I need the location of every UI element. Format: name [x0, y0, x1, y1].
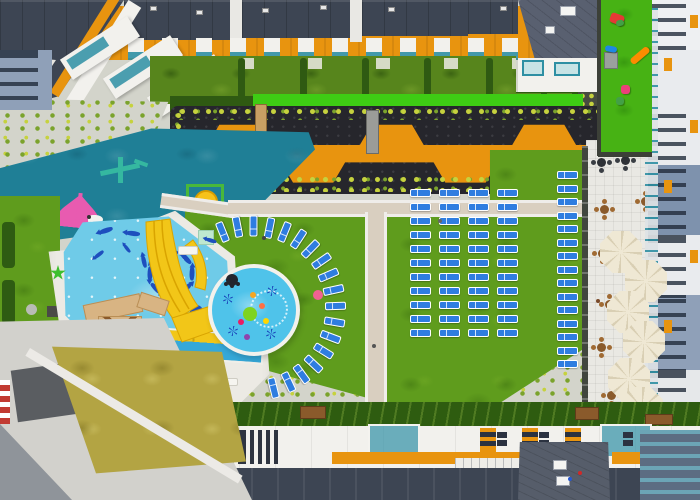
splash-toy — [238, 319, 244, 325]
sun-lounger — [557, 225, 578, 233]
sun-lounger — [439, 301, 460, 309]
snowflake-decal — [228, 326, 238, 336]
sun-lounger — [497, 315, 518, 323]
kids-toy — [621, 85, 630, 94]
footpath-vertical — [365, 212, 387, 434]
sun-lounger — [439, 203, 460, 211]
sun-lounger — [325, 302, 346, 311]
orange-window-accent — [664, 180, 672, 193]
sun-lounger — [557, 333, 578, 341]
splash-toy — [250, 292, 256, 298]
roof-ac-unit — [150, 6, 157, 11]
sun-lounger — [557, 252, 578, 260]
cafe-table-wood — [597, 343, 606, 352]
sun-lounger — [557, 347, 578, 355]
sun-lounger — [410, 217, 431, 225]
roof-ac-unit — [500, 6, 507, 11]
sun-lounger — [410, 301, 431, 309]
sun-lounger — [468, 329, 489, 337]
louver-panels — [242, 430, 282, 464]
skylight — [560, 6, 576, 16]
sun-lounger — [557, 293, 578, 301]
sun-lounger — [557, 171, 578, 179]
utility-box — [604, 52, 618, 69]
cafe-table-wood — [600, 205, 609, 214]
sun-lounger — [497, 217, 518, 225]
sun-lounger — [468, 231, 489, 239]
sun-lounger — [468, 259, 489, 267]
orange-window-accent — [690, 250, 698, 263]
sun-lounger — [557, 306, 578, 314]
snowflake-decal — [266, 329, 276, 339]
deck-bench — [178, 246, 198, 255]
sun-lounger — [439, 217, 460, 225]
cafe-table-dark — [597, 158, 606, 167]
person — [596, 299, 600, 303]
building-block — [0, 50, 52, 110]
person — [578, 471, 582, 475]
sun-lounger — [557, 239, 578, 247]
octopus-decal — [190, 305, 203, 318]
sun-lounger — [439, 189, 460, 197]
dolphin-ring-decal — [164, 292, 178, 297]
splash-toy — [259, 303, 265, 309]
sun-lounger — [497, 329, 518, 337]
orange-window-accent — [664, 320, 672, 333]
fire-pit — [26, 304, 37, 315]
planter-box — [575, 407, 599, 420]
sun-lounger — [468, 203, 489, 211]
sun-lounger — [497, 203, 518, 211]
octopus-toy — [226, 274, 238, 286]
sun-lounger — [497, 245, 518, 253]
kids-play-lawn — [600, 0, 652, 156]
orange-window-accent — [690, 15, 698, 28]
sun-lounger — [497, 301, 518, 309]
person — [262, 236, 266, 240]
snowflake-decal — [267, 286, 277, 296]
sun-lounger — [410, 287, 431, 295]
bottom-right-roof — [640, 430, 700, 500]
sun-lounger — [439, 231, 460, 239]
footpath-horizontal — [228, 200, 590, 217]
sun-lounger — [410, 245, 431, 253]
sun-lounger — [468, 301, 489, 309]
snowflake-decal — [223, 294, 233, 304]
roof-ac-unit — [388, 7, 395, 12]
sun-lounger — [439, 245, 460, 253]
sun-lounger — [557, 198, 578, 206]
planting-bed — [2, 222, 15, 268]
person — [372, 344, 376, 348]
sun-lounger — [557, 185, 578, 193]
fence — [597, 0, 601, 156]
splash-toy — [243, 307, 257, 321]
sun-lounger — [468, 217, 489, 225]
sun-lounger — [468, 245, 489, 253]
splash-toy — [313, 290, 323, 300]
roof-ac-unit — [320, 5, 327, 10]
sun-lounger — [410, 203, 431, 211]
roof-window — [497, 432, 507, 438]
sun-lounger — [410, 259, 431, 267]
top-roof-4 — [468, 0, 518, 34]
sun-lounger — [410, 315, 431, 323]
sun-lounger — [410, 231, 431, 239]
sun-lounger — [468, 287, 489, 295]
aerial-resort-courtyard-photo — [0, 0, 700, 500]
splash-toy — [263, 318, 269, 324]
person — [87, 215, 91, 219]
sun-lounger — [557, 360, 578, 368]
sun-lounger — [439, 315, 460, 323]
top-roof-1 — [124, 0, 230, 40]
orange-window-accent — [664, 58, 672, 71]
roof-window — [623, 440, 633, 446]
sun-lounger — [439, 329, 460, 337]
roof-window — [623, 432, 633, 438]
sun-lounger — [410, 273, 431, 281]
sun-lounger — [410, 189, 431, 197]
sun-lounger — [497, 231, 518, 239]
pergola-post — [366, 110, 379, 154]
kids-toy — [616, 97, 624, 105]
sun-lounger — [250, 215, 258, 236]
balcony-glass-box — [554, 62, 580, 76]
sun-lounger — [439, 287, 460, 295]
roof-window — [497, 440, 507, 446]
person — [438, 219, 442, 223]
orange-window-bay — [480, 428, 496, 452]
sun-lounger — [468, 189, 489, 197]
sun-lounger — [410, 329, 431, 337]
sun-lounger — [497, 259, 518, 267]
sun-lounger — [557, 212, 578, 220]
shrub-border — [176, 106, 642, 120]
sun-lounger — [439, 259, 460, 267]
planter-box — [300, 406, 326, 419]
dolphin-ring-decal — [148, 267, 153, 281]
sun-lounger — [497, 273, 518, 281]
planting-bed — [2, 280, 15, 324]
splash-toy — [244, 334, 250, 340]
sun-lounger — [439, 273, 460, 281]
garden-patios-row — [240, 58, 516, 69]
top-roof-2 — [242, 0, 350, 38]
balcony-glass-box — [522, 60, 544, 76]
sun-lounger — [468, 315, 489, 323]
sun-lounger — [468, 273, 489, 281]
sun-lounger — [557, 320, 578, 328]
roof-gap-terrace — [350, 0, 362, 42]
person — [568, 477, 572, 481]
orange-window-accent — [690, 120, 698, 133]
cafe-table-dark — [621, 156, 630, 165]
sun-lounger — [497, 287, 518, 295]
bottom-hip-roof — [518, 442, 610, 500]
seesaw-equipment — [100, 155, 148, 187]
roof-window — [539, 432, 549, 438]
sun-lounger — [557, 266, 578, 274]
sun-lounger — [497, 189, 518, 197]
roof-ac-unit — [262, 8, 269, 13]
red-white-curb — [0, 380, 10, 424]
sun-lounger — [557, 279, 578, 287]
skylight — [545, 26, 555, 34]
top-roof-3 — [362, 0, 468, 36]
fence — [598, 152, 652, 157]
skylight — [553, 460, 567, 470]
roof-ac-unit — [196, 10, 203, 15]
